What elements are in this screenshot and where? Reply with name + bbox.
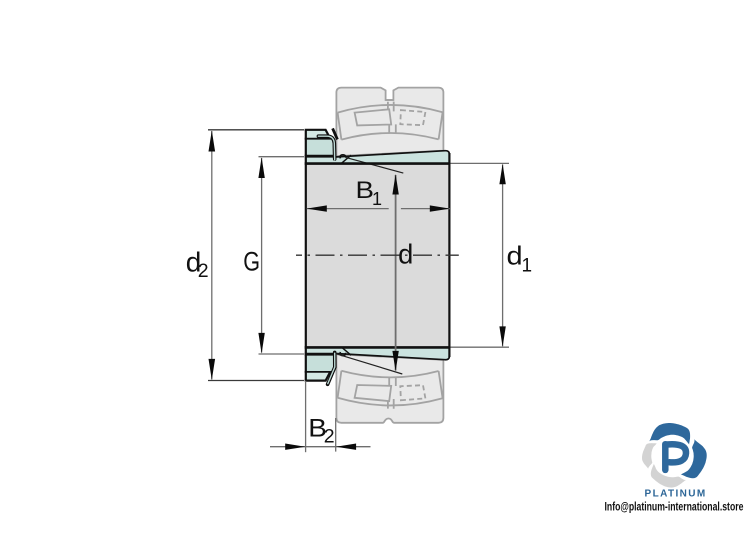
svg-text:Info@platinum-international.st: Info@platinum-international.store — [605, 500, 744, 514]
svg-text:d: d — [398, 239, 413, 270]
svg-text:1: 1 — [372, 189, 382, 209]
svg-text:1: 1 — [522, 256, 533, 277]
svg-text:d: d — [507, 241, 523, 270]
svg-text:PLATINUM: PLATINUM — [645, 489, 707, 500]
svg-text:2: 2 — [324, 426, 335, 448]
svg-text:2: 2 — [198, 260, 209, 282]
svg-text:G: G — [243, 247, 260, 277]
